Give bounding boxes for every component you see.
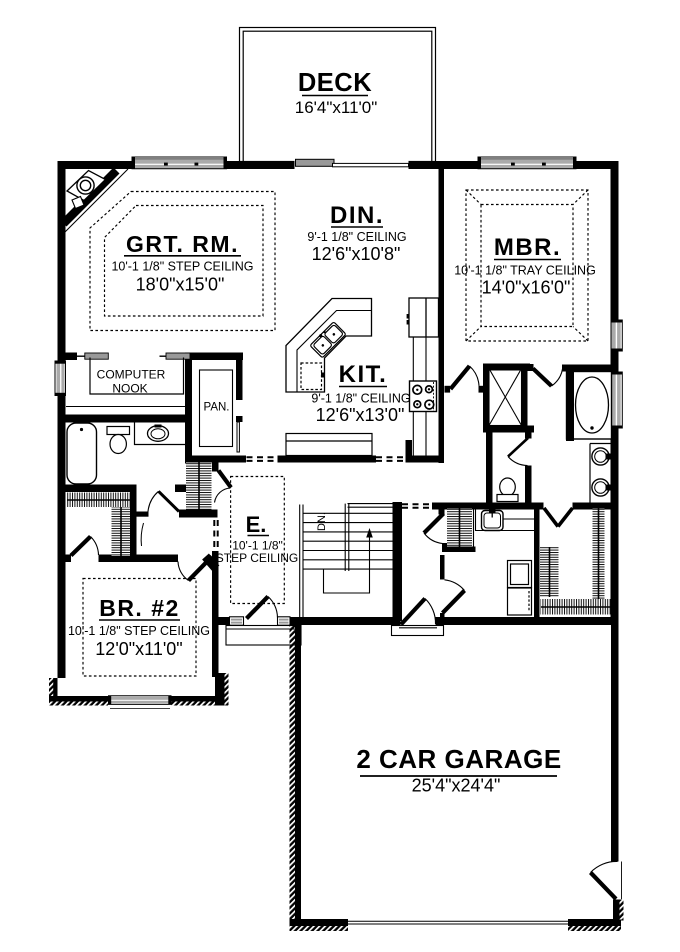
svg-text:STEP CEILING: STEP CEILING — [216, 551, 298, 565]
svg-text:12'6"x13'0": 12'6"x13'0" — [316, 405, 405, 425]
svg-text:12'0"x11'0": 12'0"x11'0" — [95, 639, 182, 659]
svg-text:E.: E. — [246, 512, 267, 537]
svg-text:25'4"x24'4": 25'4"x24'4" — [412, 776, 501, 796]
svg-text:PAN.: PAN. — [204, 402, 230, 414]
svg-text:18'0"x15'0": 18'0"x15'0" — [136, 275, 225, 295]
svg-text:DN.: DN. — [316, 512, 328, 531]
svg-text:9'-1 1/8" CEILING: 9'-1 1/8" CEILING — [307, 230, 406, 244]
svg-text:12'6"x10'8": 12'6"x10'8" — [312, 244, 401, 264]
svg-text:16'4"x11'0": 16'4"x11'0" — [295, 98, 378, 117]
svg-text:10'-1 1/8" TRAY CEILING: 10'-1 1/8" TRAY CEILING — [454, 264, 596, 278]
svg-text:10'-1 1/8" STEP CEILING: 10'-1 1/8" STEP CEILING — [68, 624, 210, 638]
svg-text:10'-1 1/8" STEP CEILING: 10'-1 1/8" STEP CEILING — [111, 260, 253, 274]
svg-text:14'0"x16'0": 14'0"x16'0" — [482, 278, 571, 298]
svg-text:KIT.: KIT. — [339, 361, 388, 388]
svg-text:GRT. RM.: GRT. RM. — [126, 231, 239, 257]
svg-text:2 CAR GARAGE: 2 CAR GARAGE — [356, 744, 561, 774]
svg-text:MBR.: MBR. — [494, 234, 561, 261]
svg-text:9'-1 1/8" CEILING: 9'-1 1/8" CEILING — [311, 392, 410, 406]
svg-text:DECK: DECK — [298, 69, 372, 97]
svg-text:COMPUTER: COMPUTER — [97, 368, 166, 382]
svg-text:BR. #2: BR. #2 — [99, 595, 180, 621]
svg-text:DIN.: DIN. — [330, 202, 384, 229]
